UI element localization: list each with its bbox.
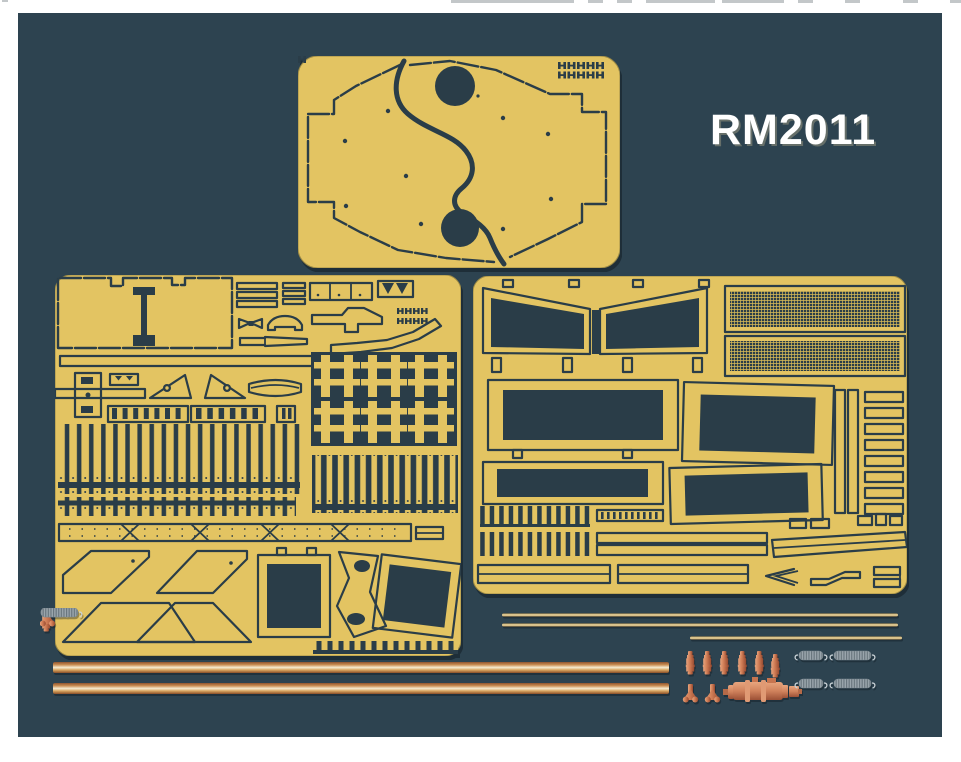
crop-mark (903, 0, 918, 3)
right-slat-group (312, 455, 458, 513)
coil-springs (40, 608, 875, 688)
crop-mark (950, 0, 961, 3)
crop-mark (617, 0, 632, 3)
brass-rods (53, 662, 669, 694)
right-fret (473, 276, 907, 594)
turned-muffler (723, 677, 802, 702)
track-link-lattice (311, 352, 457, 446)
fender-slat-row-short (58, 497, 296, 516)
louver-slat-group (478, 506, 592, 556)
top-fret (298, 56, 620, 268)
crop-mark (722, 0, 784, 3)
product-photo: RM2011 (0, 0, 961, 762)
hardware-set (40, 608, 920, 708)
mesh-screen-2 (725, 336, 905, 376)
crop-mark (798, 0, 813, 3)
left-fret (55, 275, 461, 656)
fender-slat-row-long (58, 424, 300, 494)
crop-mark (588, 0, 603, 3)
product-code-label: RM2011 (710, 106, 876, 155)
crop-mark (2, 0, 8, 2)
mesh-screen-1 (725, 286, 905, 332)
crop-mark (845, 0, 860, 3)
crop-mark (451, 0, 574, 3)
crop-mark (646, 0, 715, 3)
brass-wires (502, 614, 902, 640)
